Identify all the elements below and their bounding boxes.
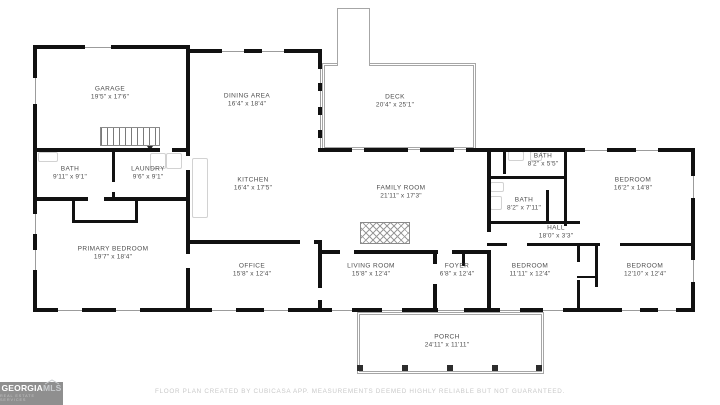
room-name: OFFICE bbox=[233, 263, 271, 270]
wall bbox=[595, 243, 598, 287]
wall bbox=[420, 148, 454, 152]
room-name: DECK bbox=[376, 94, 414, 101]
room-label-foyer: FOYER 6'8" x 12'4" bbox=[440, 263, 474, 278]
window-marker bbox=[212, 308, 236, 312]
window-marker bbox=[33, 78, 37, 104]
wall bbox=[72, 220, 138, 223]
room-dims: 19'5" x 17'6" bbox=[91, 94, 129, 101]
window-marker bbox=[33, 250, 37, 270]
wall bbox=[452, 250, 491, 254]
window-marker bbox=[500, 308, 520, 312]
wall bbox=[186, 49, 322, 53]
window-marker bbox=[85, 45, 111, 49]
wall bbox=[364, 148, 408, 152]
fixture-outline bbox=[192, 158, 208, 218]
wall bbox=[487, 250, 491, 312]
wall bbox=[318, 250, 340, 254]
window-marker bbox=[332, 308, 352, 312]
room-label-garage: GARAGE 19'5" x 17'6" bbox=[91, 86, 129, 101]
room-name: PORCH bbox=[425, 334, 469, 341]
wall bbox=[186, 268, 190, 312]
room-dims: 16'4" x 17'5" bbox=[234, 185, 272, 192]
room-dims: 18'0" x 3'3" bbox=[539, 233, 573, 240]
window-marker bbox=[222, 49, 244, 53]
wall bbox=[546, 190, 549, 224]
room-label-family-room: FAMILY ROOM 21'11" x 17'3" bbox=[377, 185, 426, 200]
garage-stairs bbox=[100, 127, 160, 146]
wall bbox=[318, 107, 322, 115]
room-label-hall: HALL 18'0" x 3'3" bbox=[539, 225, 573, 240]
room-dims: 8'2" x 7'11" bbox=[507, 205, 541, 212]
room-label-bedroom-bottom-right: BEDROOM 12'10" x 12'4" bbox=[624, 263, 666, 278]
room-label-bath-left: BATH 9'11" x 9'1" bbox=[53, 166, 87, 181]
wall bbox=[318, 49, 322, 69]
room-dims: 12'10" x 12'4" bbox=[624, 271, 666, 278]
wall bbox=[318, 240, 322, 288]
room-name: BEDROOM bbox=[624, 263, 666, 270]
room-name: PRIMARY BEDROOM bbox=[78, 246, 149, 253]
room-label-living-room: LIVING ROOM 15'8" x 12'4" bbox=[347, 263, 395, 278]
room-dims: 20'4" x 25'1" bbox=[376, 102, 414, 109]
room-name: LIVING ROOM bbox=[347, 263, 395, 270]
logo-georgia-text: GEORGIA bbox=[1, 383, 43, 393]
wall bbox=[318, 130, 322, 138]
window-marker bbox=[262, 49, 284, 53]
fixture-outline bbox=[38, 152, 58, 162]
window-marker bbox=[691, 260, 695, 282]
window-marker bbox=[636, 148, 658, 152]
wall bbox=[33, 148, 160, 152]
room-dims: 15'8" x 12'4" bbox=[233, 271, 271, 278]
room-label-primary-bedroom: PRIMARY BEDROOM 19'7" x 18'4" bbox=[78, 246, 149, 261]
porch-post bbox=[536, 365, 542, 371]
room-dims: 16'2" x 14'8" bbox=[614, 185, 652, 192]
wall bbox=[354, 250, 438, 254]
fixture-outline bbox=[490, 196, 502, 210]
porch-post bbox=[447, 365, 453, 371]
wall bbox=[33, 197, 88, 201]
room-name: BATH bbox=[528, 153, 559, 160]
window-marker bbox=[585, 148, 607, 152]
wall bbox=[186, 45, 190, 152]
room-label-deck: DECK 20'4" x 25'1" bbox=[376, 94, 414, 109]
wall bbox=[112, 150, 115, 182]
wall bbox=[186, 150, 190, 156]
wall bbox=[104, 197, 190, 201]
room-dims: 9'11" x 9'1" bbox=[53, 174, 87, 181]
wall bbox=[691, 148, 695, 312]
room-name: GARAGE bbox=[91, 86, 129, 93]
wall bbox=[186, 240, 300, 244]
georgia-mls-logo: GEORGIAMLS REAL ESTATE SERVICES bbox=[0, 382, 63, 405]
logo-tagline: REAL ESTATE SERVICES bbox=[0, 395, 63, 403]
window-marker bbox=[382, 308, 402, 312]
logo-text: GEORGIAMLS bbox=[1, 384, 61, 393]
window-marker bbox=[691, 176, 695, 198]
room-name: BEDROOM bbox=[509, 263, 550, 270]
room-dims: 6'8" x 12'4" bbox=[440, 271, 474, 278]
family-room-stairs bbox=[360, 222, 410, 244]
room-label-dining-area: DINING AREA 16'4" x 18'4" bbox=[224, 93, 270, 108]
room-name: FAMILY ROOM bbox=[377, 185, 426, 192]
room-name: BEDROOM bbox=[614, 177, 652, 184]
window-marker bbox=[543, 308, 563, 312]
window-marker bbox=[33, 214, 37, 234]
room-label-porch: PORCH 24'11" x 11'11" bbox=[425, 334, 469, 349]
room-name: BATH bbox=[53, 166, 87, 173]
room-dims: 21'11" x 17'3" bbox=[377, 193, 426, 200]
room-dims: 16'4" x 18'4" bbox=[224, 101, 270, 108]
room-label-kitchen: KITCHEN 16'4" x 17'5" bbox=[234, 177, 272, 192]
room-name: LAUNDRY bbox=[131, 166, 165, 173]
room-label-office: OFFICE 15'8" x 12'4" bbox=[233, 263, 271, 278]
wall bbox=[318, 83, 322, 91]
window-marker bbox=[438, 308, 464, 312]
room-name: DINING AREA bbox=[224, 93, 270, 100]
wall bbox=[33, 45, 190, 49]
room-label-bath-middle: BATH 8'2" x 7'11" bbox=[507, 197, 541, 212]
chimney-outline bbox=[337, 8, 370, 66]
window-marker bbox=[622, 308, 640, 312]
porch-post bbox=[492, 365, 498, 371]
fixture-outline bbox=[490, 182, 504, 192]
room-name: BATH bbox=[507, 197, 541, 204]
room-dims: 8'2" x 5'5" bbox=[528, 161, 559, 168]
floor-plan: GARAGE 19'5" x 17'6" DINING AREA 16'4" x… bbox=[0, 0, 720, 405]
window-marker bbox=[116, 308, 140, 312]
window-marker bbox=[58, 308, 82, 312]
room-label-bedroom-right: BEDROOM 16'2" x 14'8" bbox=[614, 177, 652, 192]
wall bbox=[577, 280, 580, 312]
porch-post bbox=[402, 365, 408, 371]
fixture-outline bbox=[508, 151, 524, 161]
room-name: FOYER bbox=[440, 263, 474, 270]
fixture-outline bbox=[166, 153, 182, 169]
room-dims: 9'6" x 9'1" bbox=[131, 174, 165, 181]
wall bbox=[318, 148, 352, 152]
window-marker bbox=[658, 308, 676, 312]
roof-icon bbox=[44, 379, 60, 385]
room-dims: 11'11" x 12'4" bbox=[509, 271, 550, 278]
wall bbox=[620, 243, 695, 246]
room-dims: 19'7" x 18'4" bbox=[78, 254, 149, 261]
disclaimer-text: FLOOR PLAN CREATED BY CUBICASA APP. MEAS… bbox=[0, 388, 720, 395]
room-dims: 24'11" x 11'11" bbox=[425, 342, 469, 349]
room-label-bedroom-bottom-left: BEDROOM 11'11" x 12'4" bbox=[509, 263, 550, 278]
wall bbox=[577, 276, 598, 278]
porch-post bbox=[357, 365, 363, 371]
window-marker bbox=[264, 308, 288, 312]
room-dims: 15'8" x 12'4" bbox=[347, 271, 395, 278]
room-name: KITCHEN bbox=[234, 177, 272, 184]
wall bbox=[433, 284, 437, 312]
wall bbox=[503, 148, 506, 174]
room-label-laundry: LAUNDRY 9'6" x 9'1" bbox=[131, 166, 165, 181]
wall bbox=[577, 243, 580, 262]
wall bbox=[564, 148, 567, 226]
wall bbox=[433, 250, 437, 264]
wall bbox=[487, 148, 491, 232]
wall bbox=[487, 243, 507, 246]
wall bbox=[527, 243, 600, 246]
wall bbox=[487, 176, 567, 179]
room-label-bath-top-right: BATH 8'2" x 5'5" bbox=[528, 153, 559, 168]
wall bbox=[135, 200, 138, 223]
room-name: HALL bbox=[539, 225, 573, 232]
